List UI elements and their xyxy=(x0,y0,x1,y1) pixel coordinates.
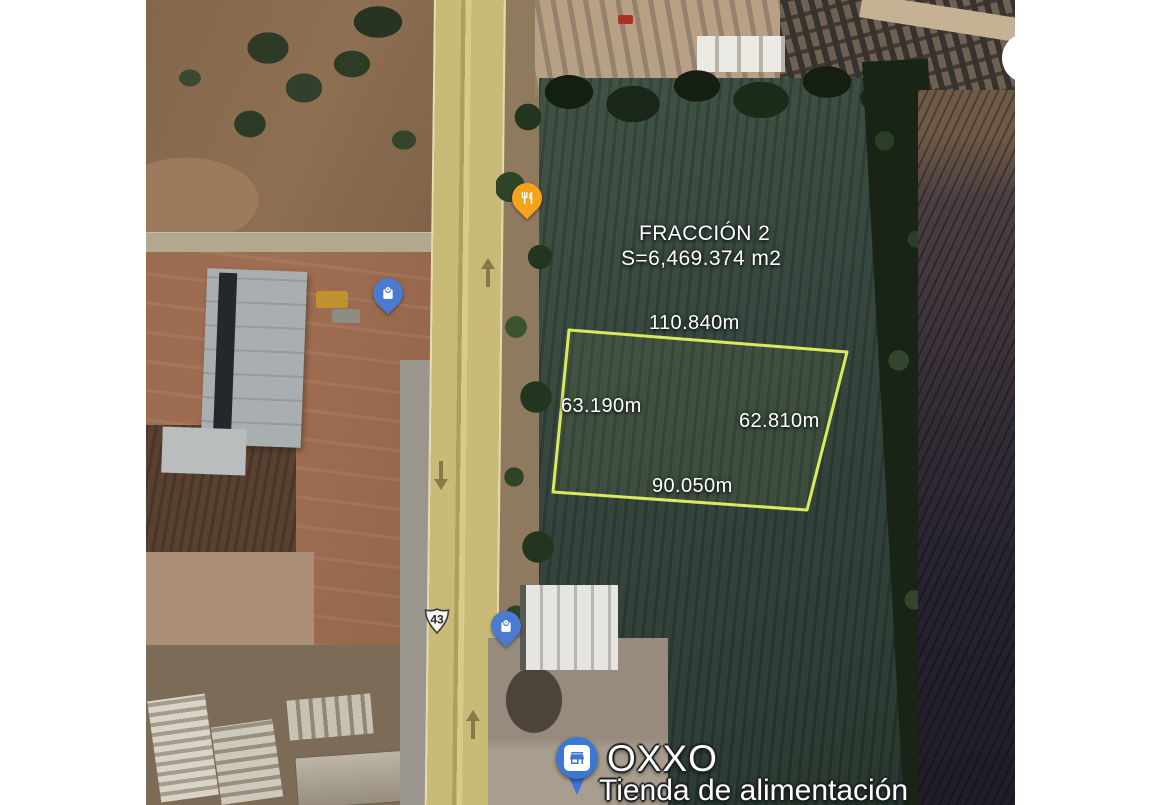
warehouse-building xyxy=(201,268,308,448)
highway-shield-43: 43 xyxy=(423,608,451,634)
page-margin-right xyxy=(1015,0,1159,805)
lumber-stack xyxy=(147,693,219,802)
page-margin-left xyxy=(0,0,146,805)
field-top-left xyxy=(146,0,438,238)
oxxo-store-pin[interactable] xyxy=(556,737,600,799)
red-vehicle xyxy=(618,15,633,24)
road-arrow-up-icon xyxy=(466,710,480,740)
measurement-right: 62.810m xyxy=(739,410,820,433)
measurement-bottom: 90.050m xyxy=(652,475,733,498)
measurement-left: 63.190m xyxy=(561,395,642,418)
restaurant-icon xyxy=(517,188,537,208)
lumber-stack xyxy=(211,719,283,805)
parcel-area: S=6,469.374 m2 xyxy=(621,247,781,271)
shopping-bag-icon xyxy=(378,283,398,303)
machinery xyxy=(332,309,360,323)
storefront-icon xyxy=(564,745,590,771)
road-arrow-down-icon xyxy=(434,460,448,490)
lumber-yard xyxy=(146,645,440,805)
shopping-bag-icon xyxy=(496,616,516,636)
lumber-stack xyxy=(286,693,373,740)
side-road xyxy=(146,232,440,253)
machinery xyxy=(316,291,348,308)
parcel-title: FRACCIÓN 2 xyxy=(639,222,770,246)
road-arrow-up-icon xyxy=(481,258,495,288)
plowed-field-right xyxy=(918,90,1015,805)
map-edge-notch xyxy=(1002,33,1052,83)
white-roof-building xyxy=(520,585,618,670)
screenshot-canvas: FRACCIÓN 2 S=6,469.374 m2 110.840m 63.19… xyxy=(0,0,1159,805)
measurement-top: 110.840m xyxy=(649,312,740,335)
shield-number: 43 xyxy=(430,613,444,627)
concrete-apron xyxy=(161,427,247,476)
oxxo-poi-category[interactable]: Tienda de alimentación xyxy=(599,774,908,805)
